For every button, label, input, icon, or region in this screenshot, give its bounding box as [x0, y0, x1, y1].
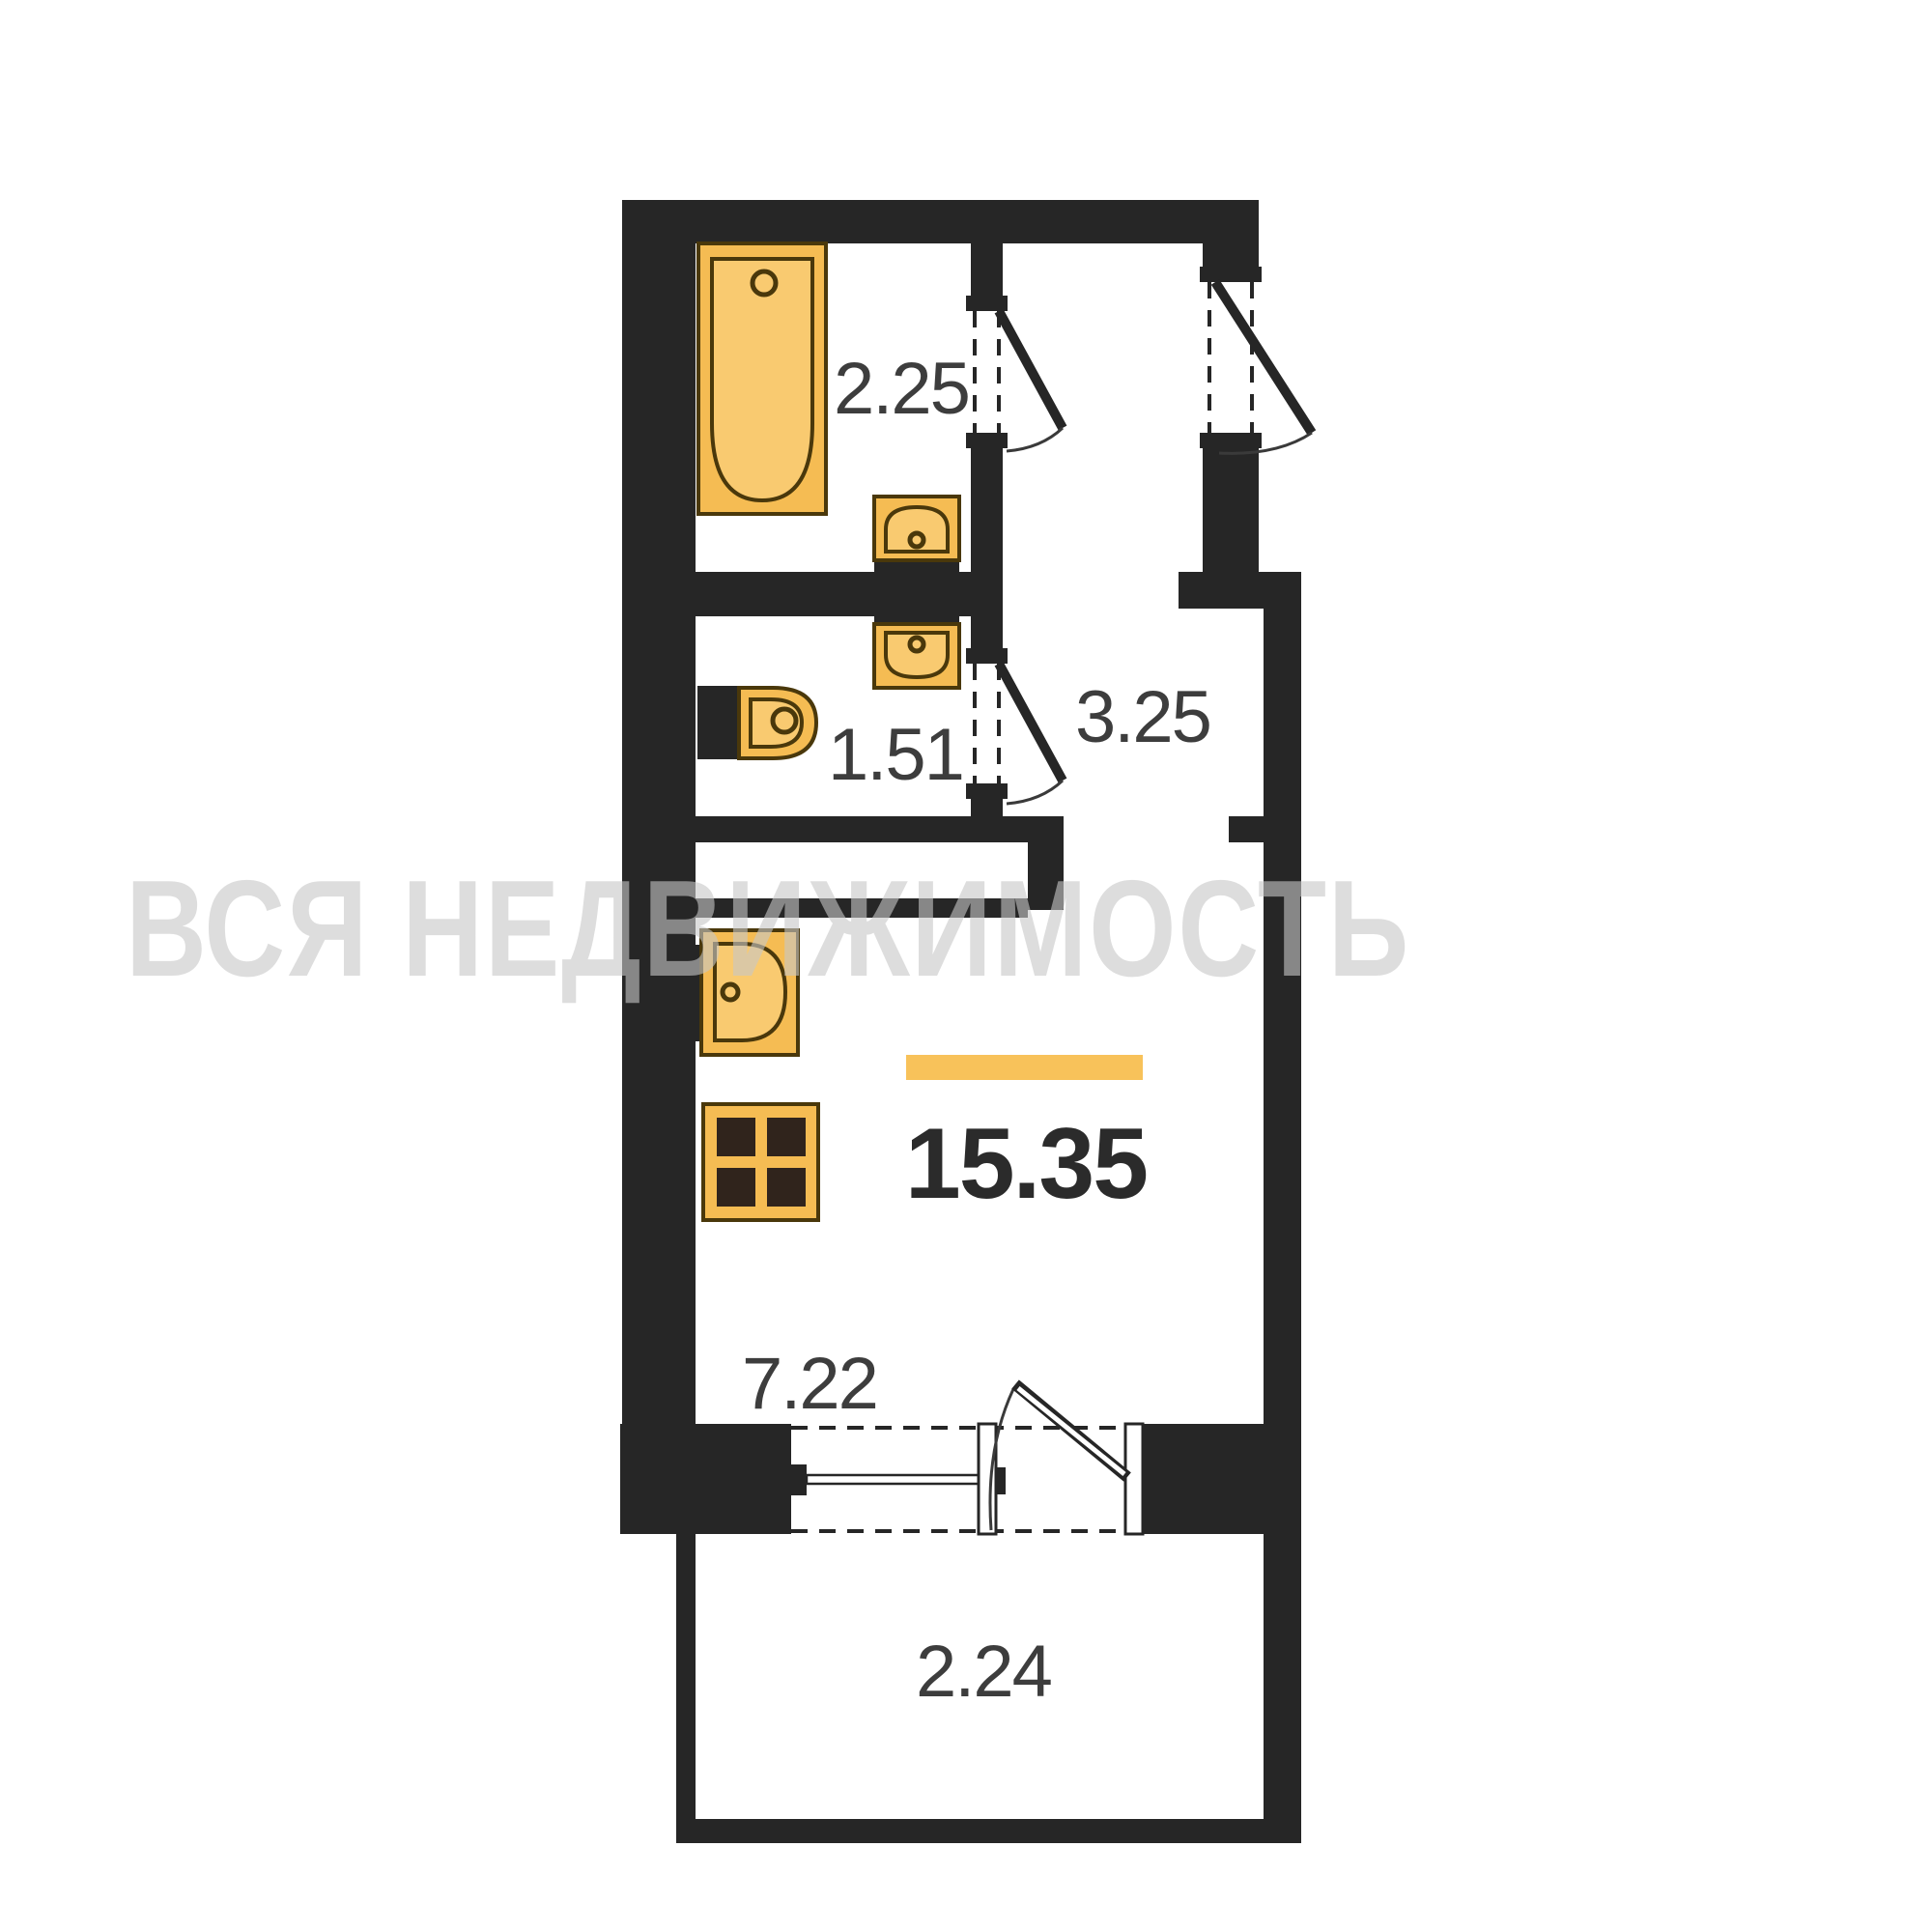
wall-window-block-left [620, 1424, 791, 1534]
area-highlight-bar [906, 1055, 1143, 1080]
watermark-text: ВСЯ НЕДВИЖИМОСТЬ [126, 852, 1410, 1006]
wall-passage-stub [1229, 816, 1264, 842]
wall-balcony-left [676, 1534, 696, 1824]
balcony-area-label: 2.24 [916, 1631, 1052, 1713]
bathroom-area-label: 2.25 [834, 348, 969, 430]
toilet-icon [697, 686, 816, 759]
kitchen-area-label: 7.22 [742, 1343, 877, 1425]
room-balcony: 2.24 [916, 1631, 1052, 1713]
wc-sink-icon [874, 609, 959, 688]
bathroom-sink-icon [874, 497, 959, 574]
stove-4-burner-icon [703, 1104, 818, 1220]
wall-balcony-bottom [676, 1819, 1301, 1843]
living-area-label: 15.35 [905, 1108, 1147, 1220]
wall-top [622, 200, 1259, 243]
wall-window-block-right [1143, 1424, 1264, 1534]
wall-right-lower [1264, 572, 1301, 1843]
bathtub-icon [698, 243, 826, 514]
wall-right-upper-b [1203, 435, 1259, 572]
floor-plan: 2.25 1.51 3.25 [0, 0, 1932, 1932]
wc-area-label: 1.51 [828, 714, 963, 796]
wall-wc-bottom [694, 816, 1064, 842]
wall-hall-middle [971, 435, 1003, 664]
room-hallway: 3.25 [1075, 676, 1210, 758]
hallway-area-label: 3.25 [1075, 676, 1210, 758]
